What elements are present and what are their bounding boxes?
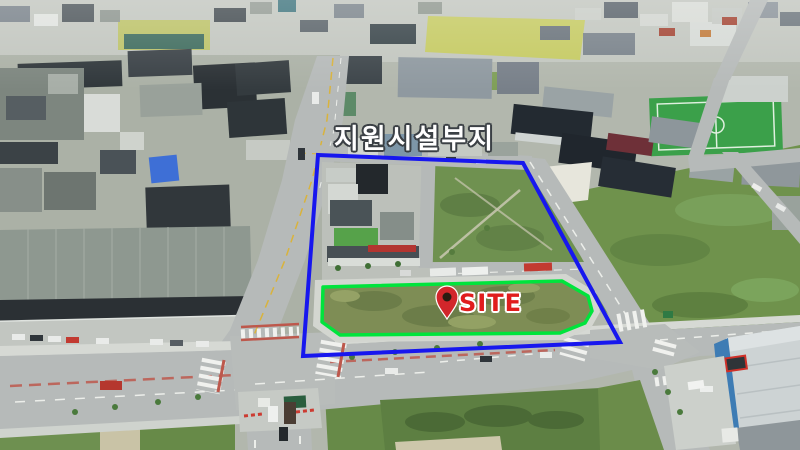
tree [349, 354, 355, 360]
warehouse-roof [227, 98, 287, 138]
warehouse-roof [0, 142, 58, 164]
storefront-band [328, 258, 420, 266]
tree [665, 389, 671, 395]
tree [195, 394, 201, 400]
road-sign [663, 311, 673, 318]
tree [155, 399, 161, 405]
warehouse-roof [145, 185, 230, 230]
car [298, 148, 305, 160]
shop-row [326, 168, 358, 182]
district-area-label: 지원시설부지 [334, 126, 495, 153]
car [385, 368, 398, 374]
warehouse-roof [0, 226, 252, 306]
office-building [84, 94, 120, 132]
tree [434, 345, 440, 351]
tree [477, 341, 483, 347]
dark-building [356, 164, 388, 194]
alley-road [419, 164, 436, 268]
site-block [313, 274, 600, 342]
shrub [464, 405, 532, 427]
grass-texture [526, 308, 570, 324]
bush [449, 249, 455, 255]
tree [652, 369, 658, 375]
car [196, 341, 209, 347]
building-roof [120, 132, 144, 150]
car [66, 337, 79, 343]
site-label: SITE [459, 291, 522, 315]
barrier-bar [244, 414, 262, 416]
car [150, 339, 163, 345]
building-roof [100, 150, 136, 174]
car [268, 406, 278, 422]
red-sign [725, 356, 747, 372]
car [96, 338, 109, 344]
tree [365, 263, 371, 269]
grass-texture [448, 315, 496, 329]
checkpoint-pad [238, 388, 322, 432]
car [400, 270, 411, 276]
red-bus [524, 263, 552, 272]
factory-yard [246, 140, 290, 160]
car [279, 427, 288, 441]
truck [284, 402, 296, 424]
grass-texture [731, 278, 799, 302]
car [30, 335, 43, 341]
car [480, 356, 492, 362]
car [48, 336, 61, 342]
tree [677, 409, 683, 415]
building-roof [0, 168, 42, 212]
car [476, 159, 486, 164]
car [312, 92, 319, 104]
lawn [334, 228, 378, 246]
tree [392, 349, 398, 355]
building-roof [721, 427, 738, 442]
building-roof [380, 212, 414, 240]
red-signboard [368, 245, 416, 252]
bus [462, 267, 488, 276]
shrub [405, 412, 465, 432]
building-roof [6, 96, 46, 120]
car [446, 157, 456, 162]
blue-roof-building [149, 155, 180, 184]
truck [100, 381, 122, 390]
car [12, 334, 25, 340]
car [540, 352, 552, 358]
atmospheric-haze [0, 0, 800, 90]
aerial-photo-view: 지원시설부지 SITE [0, 0, 800, 450]
barrier-bar [296, 410, 314, 412]
tree [395, 261, 401, 267]
shrub [528, 411, 584, 429]
grass-texture [330, 290, 360, 302]
tree [335, 265, 341, 271]
bus [430, 268, 456, 277]
tree [72, 409, 78, 415]
building-roof [330, 200, 372, 226]
bush [484, 225, 490, 231]
building-roof [44, 172, 96, 210]
car [170, 340, 183, 346]
aerial-photo [0, 0, 800, 450]
grass-texture [610, 234, 710, 266]
guard-booth [258, 398, 270, 407]
tree [112, 404, 118, 410]
